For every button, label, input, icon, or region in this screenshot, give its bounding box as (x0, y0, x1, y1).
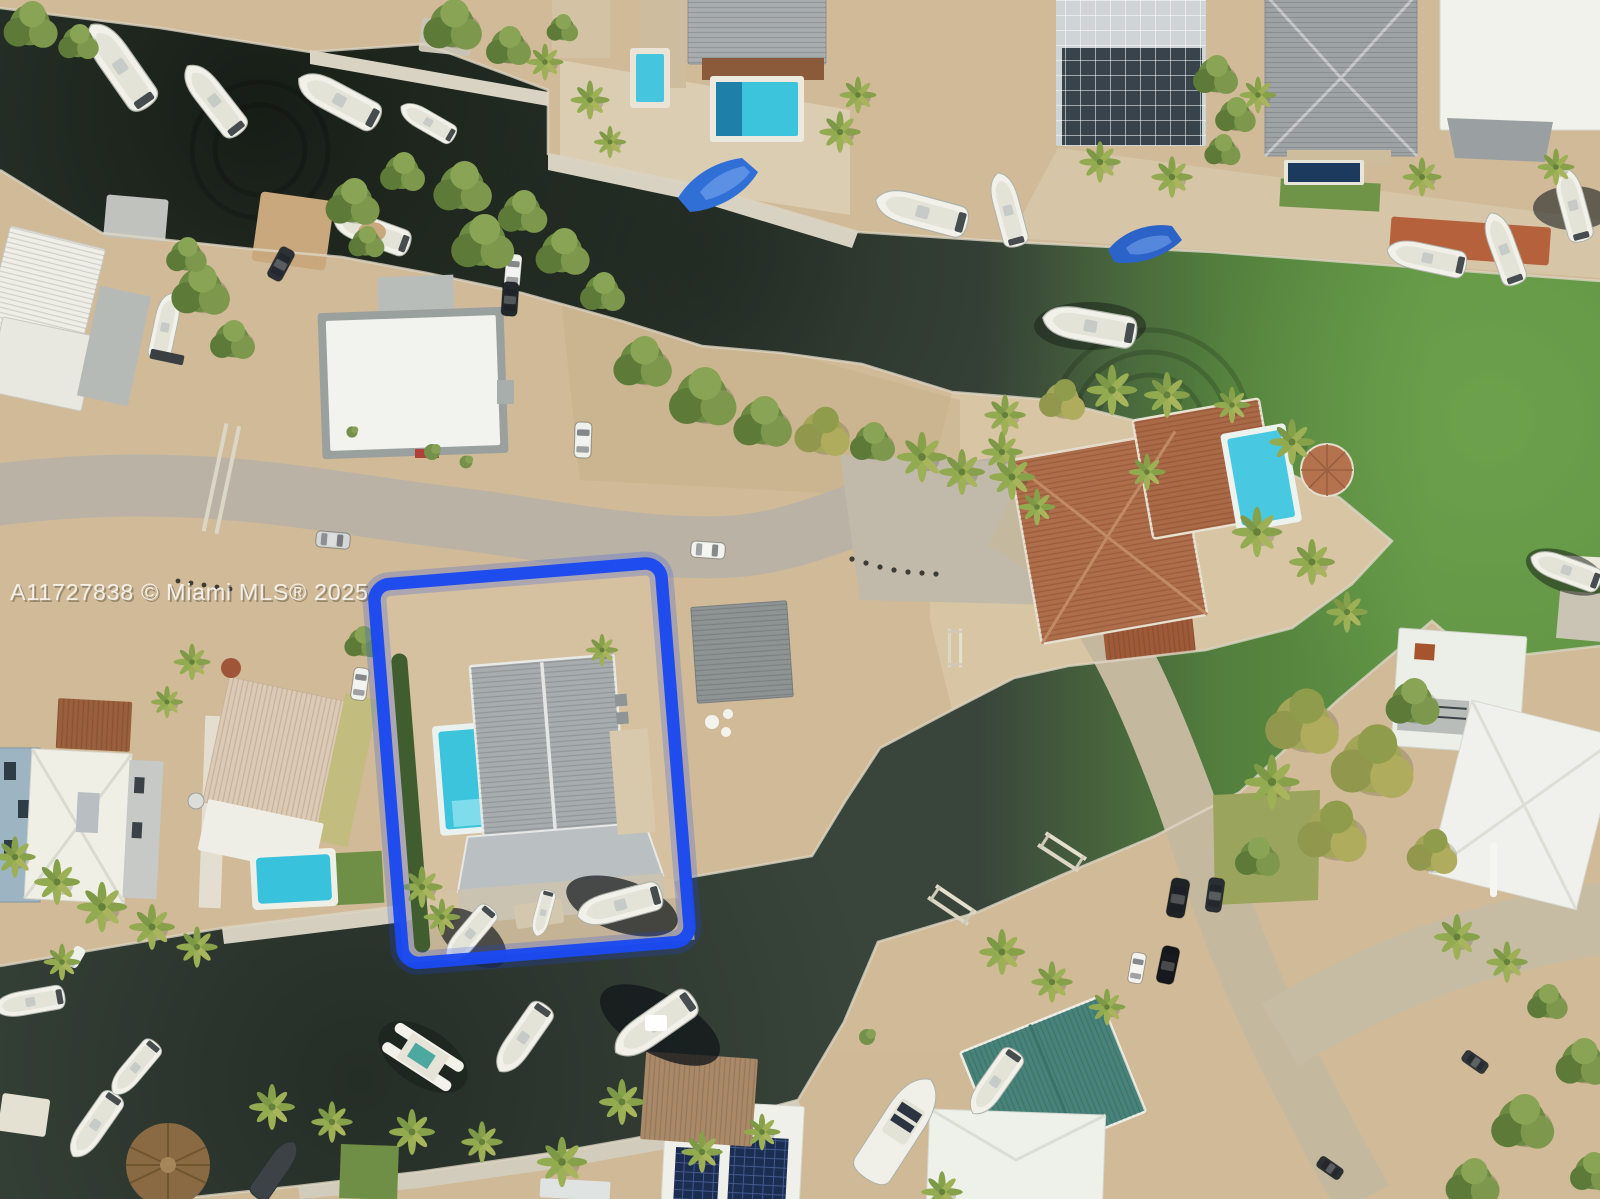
car-white-road (690, 541, 725, 559)
screened-pool-enclosure (1056, 0, 1206, 146)
house-white-bottom (927, 1109, 1106, 1199)
gray-awning (1447, 118, 1553, 162)
pool-steps (452, 799, 482, 827)
structure-partial (540, 1178, 611, 1199)
small-pool (630, 48, 670, 108)
watermark-text: A11727838 © Miami MLS® 2025 (10, 579, 369, 605)
red-vent (1414, 643, 1435, 660)
car-silver (315, 531, 350, 550)
boat-in-canal (1034, 302, 1146, 350)
pool (250, 848, 339, 910)
van-white (574, 422, 592, 458)
skylight (76, 792, 100, 833)
turf-by-pool (332, 851, 385, 906)
lap-pool (1288, 163, 1360, 182)
red-bush (221, 658, 241, 678)
dock-bottom-left (0, 1093, 50, 1137)
subject-property (373, 564, 694, 980)
turf-bottom (339, 1144, 399, 1199)
satellite-dish (188, 793, 204, 809)
aerial-photo: A11727838 © Miami MLS® 2025 A11727838 © … (0, 0, 1600, 1199)
pool (710, 76, 804, 142)
rooftop-unit (497, 380, 514, 404)
gazebo-dome (1301, 444, 1353, 496)
gray-shed (691, 601, 793, 703)
watermark: A11727838 © Miami MLS® 2025 A11727838 © … (10, 579, 371, 607)
aerial-photo-canvas: A11727838 © Miami MLS® 2025 A11727838 © … (0, 0, 1600, 1199)
mast-pole (1490, 843, 1497, 897)
car-dark (501, 281, 519, 316)
